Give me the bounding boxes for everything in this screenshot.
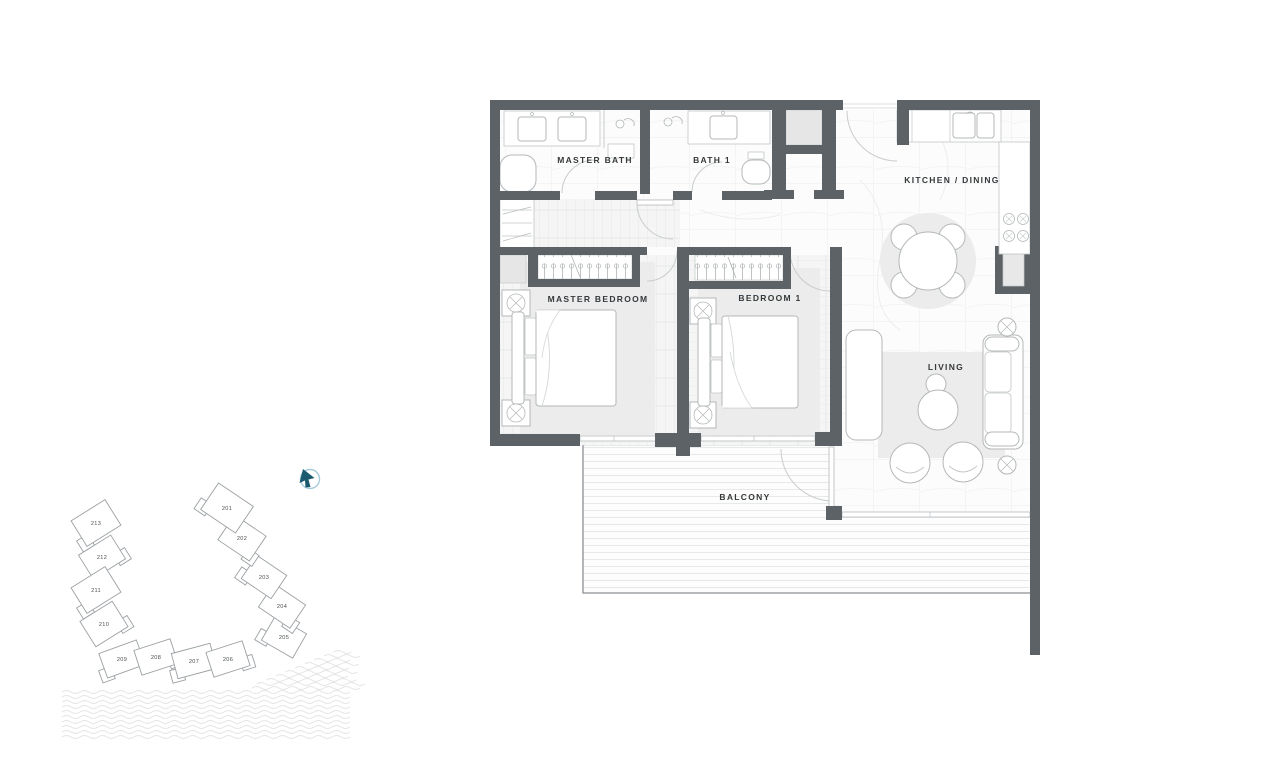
site-unit-number: 201 [222, 506, 232, 512]
floorplan-page: MASTER BATH BATH 1 KITCHEN / DINING MAST… [0, 0, 1280, 782]
master-bedroom-furniture [502, 290, 616, 426]
sink [518, 117, 546, 141]
master-bedroom-label: MASTER BEDROOM [548, 294, 649, 304]
living-label: LIVING [928, 362, 964, 372]
kitchen-sink [977, 113, 994, 138]
window [701, 436, 815, 441]
site-unit-number: 211 [91, 588, 101, 594]
media-console [846, 330, 882, 440]
floor-lamp-icon [998, 456, 1016, 474]
dining-table-set [891, 224, 965, 298]
site-unit-number: 210 [99, 622, 109, 628]
site-unit-number: 206 [223, 657, 233, 663]
bedroom1-label: BEDROOM 1 [738, 293, 801, 303]
entry-shaft-box [786, 110, 822, 145]
bathtub [500, 155, 536, 192]
site-unit-number: 204 [277, 604, 287, 610]
bedroom1-closet [695, 255, 783, 280]
north-arrow-icon [300, 469, 320, 489]
sink [558, 117, 586, 141]
floorplan-drawing: MASTER BATH BATH 1 KITCHEN / DINING MAST… [0, 0, 1280, 782]
site-unit-number: 207 [189, 659, 199, 665]
kitchen-dining-label: KITCHEN / DINING [904, 175, 999, 185]
window [842, 512, 1030, 517]
site-unit-number: 212 [97, 555, 107, 561]
window [580, 436, 656, 441]
service-box [500, 255, 526, 283]
kitchen-sink [953, 113, 975, 138]
site-key-plan [66, 480, 310, 684]
bed [512, 310, 616, 406]
sink [710, 116, 737, 139]
site-unit-number: 203 [259, 575, 269, 581]
hall-shelving-unit [500, 197, 534, 249]
site-unit-number: 202 [237, 536, 247, 542]
window [829, 447, 834, 507]
bath1-label: BATH 1 [693, 155, 731, 165]
toilet [742, 160, 770, 184]
site-unit-number: 213 [91, 521, 101, 527]
site-unit-number: 209 [117, 657, 127, 663]
floor-lamp-icon [998, 318, 1016, 336]
sofa [983, 335, 1023, 449]
master-closet [538, 255, 632, 279]
dining-table [899, 232, 957, 290]
hall-door-leaf [637, 200, 673, 205]
pouf-chair [943, 442, 983, 482]
master-bath-label: MASTER BATH [557, 155, 633, 165]
bedroom1-furniture [690, 298, 798, 428]
site-unit-number: 205 [279, 635, 289, 641]
kitchen-shaft-box [1003, 254, 1024, 286]
site-unit-number: 208 [151, 655, 161, 661]
balcony-label: BALCONY [719, 492, 770, 502]
pouf-chair [890, 443, 930, 483]
